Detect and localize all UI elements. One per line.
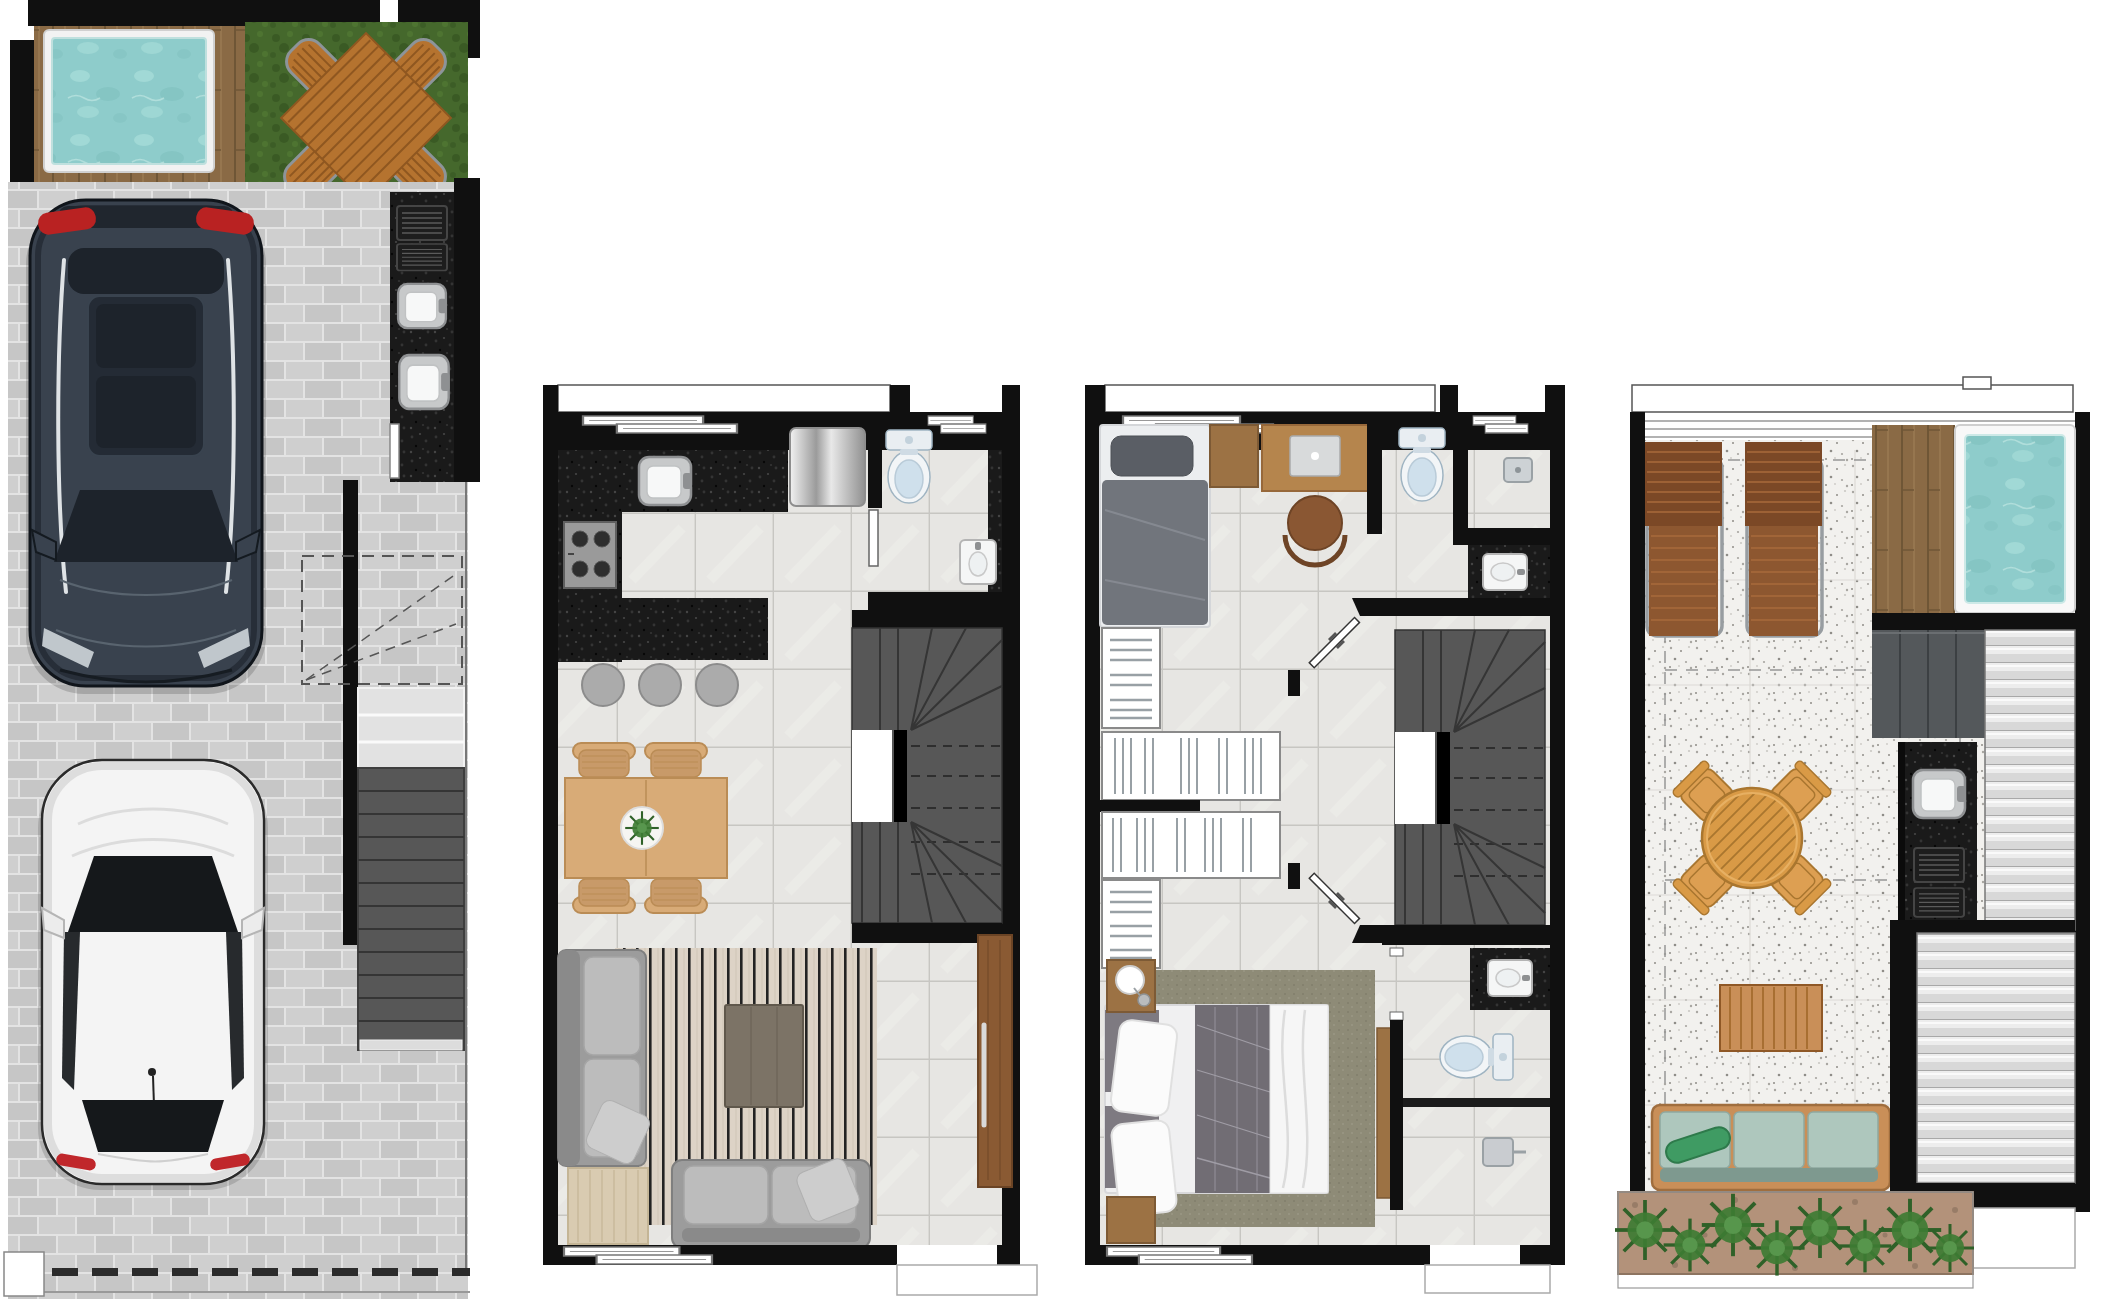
rear-landing xyxy=(1425,1265,1550,1293)
plan-bedroom-floor xyxy=(1085,385,1565,1293)
ensuite-basin xyxy=(1488,960,1532,996)
staircase xyxy=(852,628,1002,923)
refrigerator xyxy=(790,428,865,506)
side-table xyxy=(568,1168,648,1244)
planter-bed xyxy=(1615,1192,1974,1288)
outdoor-kitchen-counter xyxy=(390,192,454,482)
chaise-sofa xyxy=(558,950,653,1167)
floorplan-canvas xyxy=(0,0,2106,1299)
bathroom-toilet xyxy=(1399,428,1445,501)
centerpiece-plant xyxy=(621,807,663,849)
louvered-roof-lower xyxy=(1917,933,2075,1183)
timber-deck xyxy=(1872,425,1955,613)
shower-head xyxy=(1504,458,1532,482)
nightstand xyxy=(1210,425,1258,487)
entry-door xyxy=(978,935,1012,1187)
solar-panels xyxy=(1872,630,1985,738)
plan-rooftop xyxy=(1615,377,2090,1288)
ensuite-toilet xyxy=(1440,1034,1513,1080)
plan-living-floor xyxy=(543,385,1037,1295)
service-door xyxy=(390,424,399,478)
coffee-table xyxy=(725,1005,803,1107)
nightstand-b xyxy=(1107,1197,1155,1243)
bbq-counter xyxy=(1898,742,1977,922)
outdoor-sink-1 xyxy=(398,284,447,328)
outdoor-sink-2 xyxy=(399,355,449,409)
rear-landing xyxy=(897,1265,1037,1295)
balcony-ledge xyxy=(558,385,890,412)
master-bed xyxy=(1105,1005,1328,1217)
plunge-pool xyxy=(44,30,214,172)
bar-stools xyxy=(582,664,738,706)
floorplan-sheet xyxy=(0,0,2106,1299)
parapet xyxy=(1632,385,2073,412)
powder-room-basin xyxy=(960,540,996,584)
picnic-table-set xyxy=(278,33,451,205)
cooktop xyxy=(564,522,616,588)
stair-flight xyxy=(358,688,464,1050)
balcony-ledge xyxy=(1105,385,1435,412)
bbq-grills xyxy=(397,206,447,271)
suv-car xyxy=(26,200,266,694)
staircase xyxy=(1395,630,1545,925)
louvered-roof-upper xyxy=(1985,630,2075,930)
washbasin xyxy=(1483,554,1527,590)
kitchen-sink xyxy=(639,457,692,505)
outdoor-sofa xyxy=(1652,1105,1890,1190)
study-desk xyxy=(1262,425,1368,491)
two-seat-sofa xyxy=(672,1156,870,1248)
coffee-table xyxy=(1720,985,1822,1051)
hatchback-car xyxy=(38,760,268,1190)
jacuzzi xyxy=(1955,425,2075,613)
bbq-sink xyxy=(1913,770,1966,818)
single-bed xyxy=(1100,425,1210,627)
plan-ground-floor xyxy=(4,0,480,1299)
powder-room-door xyxy=(869,510,878,566)
kitchen-island xyxy=(558,598,768,660)
powder-room-toilet xyxy=(886,430,932,503)
